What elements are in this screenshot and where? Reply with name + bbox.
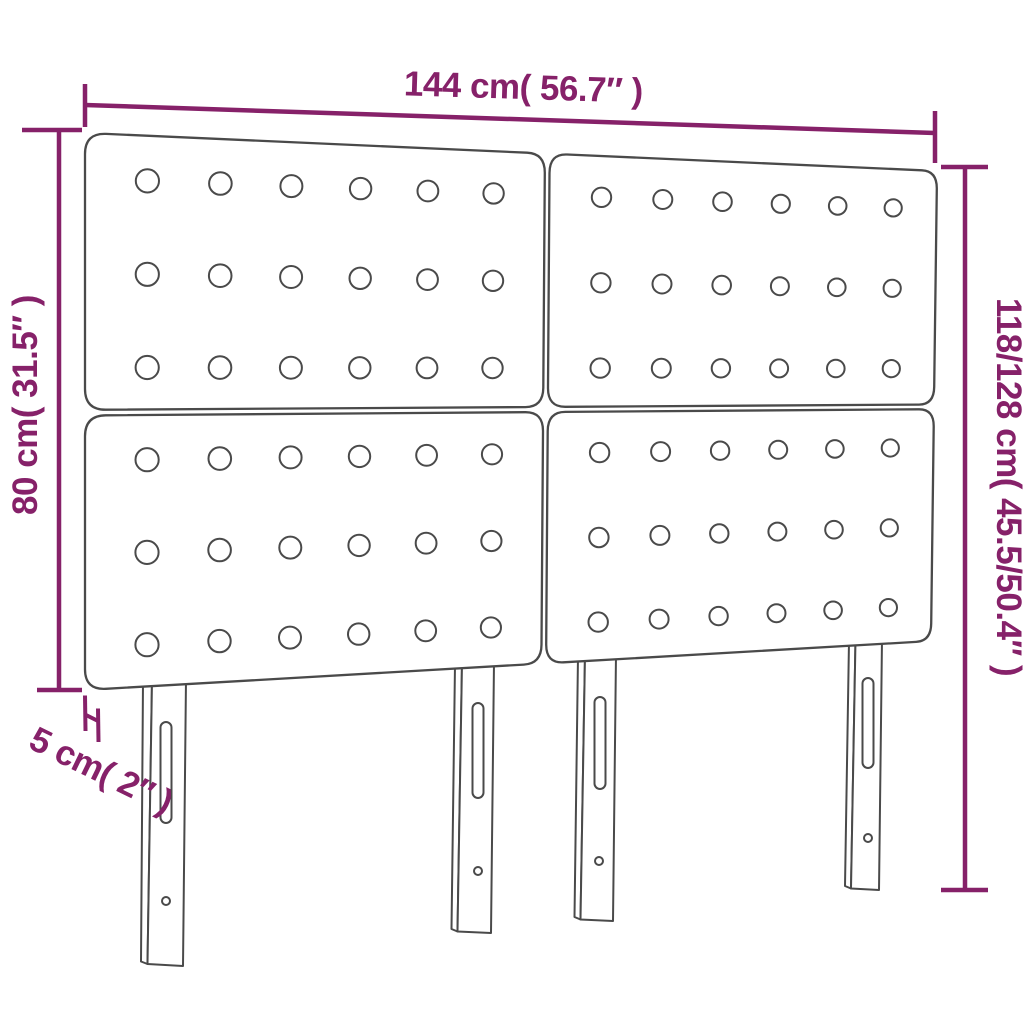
leg-screw-hole [474,867,482,875]
tufting-button [483,271,503,291]
tufting-button [208,539,231,562]
tufting-button [417,358,438,379]
headboard-leg-2 [452,662,495,933]
tufting-button [651,442,670,461]
tufting-button [880,599,897,616]
tufting-button [136,169,159,192]
tufting-button [280,357,302,379]
tufting-button [209,264,232,287]
tufting-button [135,633,158,656]
tufting-button [825,521,843,539]
tufting-button [829,197,847,215]
tufting-button [280,446,302,468]
tufting-button [482,444,502,464]
tufting-button [711,442,729,460]
tufting-button [209,172,232,195]
tufting-button [769,441,787,459]
tufting-button [653,275,672,294]
leg-mounting-slot [863,678,874,768]
tufting-button [483,183,503,203]
tufting-button [589,528,608,547]
tufting-button [481,531,501,551]
tufting-button [709,607,727,625]
tufting-button [882,439,899,456]
tufting-button [208,630,230,652]
tufting-button [884,280,901,297]
tufting-button [650,526,669,545]
tufting-button [650,610,669,629]
tufting-button [136,356,159,379]
tufting-button [827,360,845,378]
tufting-button [712,276,731,295]
tufting-button [590,443,609,462]
tufting-button [416,533,437,554]
headboard-leg-1 [141,679,186,966]
tufting-button [771,277,789,295]
tufting-button [350,178,371,199]
tufting-button [349,357,370,378]
tufting-button [826,440,844,458]
leg-screw-hole [162,897,170,905]
tufting-button [417,269,438,290]
tufting-button [712,359,730,377]
tufting-button [348,535,369,556]
tufting-button [824,602,842,620]
tufting-button [481,617,501,637]
tufting-button [713,192,732,211]
tufting-button [349,446,370,467]
tufting-button [209,447,232,470]
tufting-button [652,359,671,378]
width-dimension-line [85,105,935,133]
tufting-button [591,358,610,377]
leg-screw-hole [595,857,603,865]
total-height-dimension-label: 118/128 cm( 45.5/50.4″ ) [989,298,1024,676]
tufting-button [589,612,608,631]
tufting-button [415,620,436,641]
depth-tick-front [85,696,86,732]
tufting-button [418,181,439,202]
width-dimension-label: 144 cm( 56.7″ ) [403,64,643,110]
tufting-button [348,623,369,644]
tufting-button [280,175,302,197]
headboard-leg-4 [845,639,882,890]
leg-mounting-slot [473,703,484,798]
tufting-button [350,268,371,289]
depth-tick-back [98,709,99,743]
tufting-button [136,263,159,286]
diagram-canvas: 144 cm( 56.7″ ) 80 cm( 31.5″ ) 118/128 c… [0,0,1024,1024]
headboard-leg-3 [575,654,617,921]
headboard-legs [141,639,882,966]
tufting-button [592,188,611,207]
tufting-button [883,360,900,377]
panel-height-dimension-label: 80 cm( 31.5″ ) [6,295,45,515]
tufting-button [653,190,672,209]
headboard-panels [85,134,937,689]
tufting-button [209,356,232,379]
tufting-button [885,199,902,216]
tufting-button [416,445,437,466]
leg-mounting-slot [595,697,606,789]
tufting-button [279,537,301,559]
headboard-dimension-diagram: 144 cm( 56.7″ ) 80 cm( 31.5″ ) 118/128 c… [0,0,1024,1024]
tufting-button [279,627,301,649]
tufting-button [710,524,728,542]
tufting-button [768,604,786,622]
tufting-button [482,358,502,378]
tufting-button [881,519,898,536]
tufting-button [136,448,159,471]
tufting-button [135,541,158,564]
tufting-button [770,359,788,377]
tufting-button [591,273,610,292]
leg-screw-hole [864,834,872,842]
tufting-button [280,266,302,288]
tufting-button [828,279,846,297]
tufting-button [768,523,786,541]
tufting-button [772,195,790,213]
